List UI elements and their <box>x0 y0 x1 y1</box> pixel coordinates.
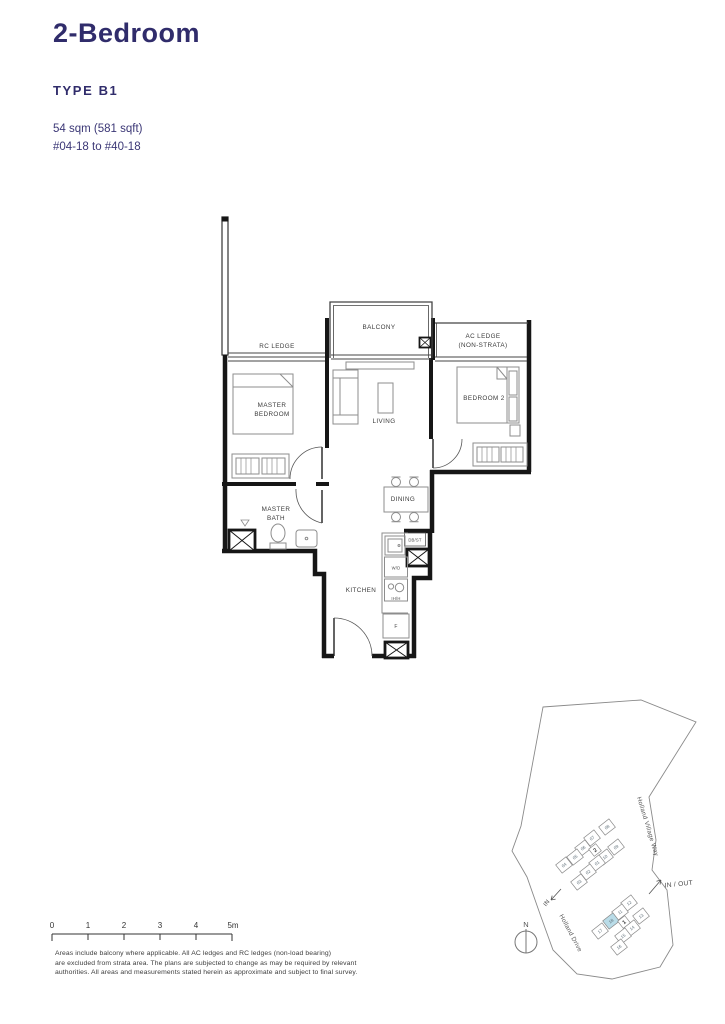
north-arrow: N <box>515 920 537 953</box>
page-title: 2-Bedroom <box>53 18 200 49</box>
block-2-cluster: 08 07 09 06 05 10 04 01 02 03 2 <box>556 819 625 890</box>
scale-tick-2: 2 <box>122 921 127 930</box>
living-label: LIVING <box>372 418 395 425</box>
master-bedroom-label-1: MASTER <box>258 402 287 409</box>
disclaimer-line-1: Areas include balcony where applicable. … <box>55 949 395 959</box>
in-out-label: IN / OUT <box>664 880 693 890</box>
site-unit: 08 <box>599 819 616 835</box>
unit-type: TYPE B1 <box>53 83 200 98</box>
master-bath-label-1: MASTER <box>262 506 291 513</box>
scale-tick-4: 4 <box>194 921 199 930</box>
road-holland-drive: Holland Drive <box>557 913 583 953</box>
ac-ledge-label-2: (NON-STRATA) <box>459 342 508 349</box>
fridge-label: F <box>394 624 397 630</box>
north-label: N <box>523 920 528 929</box>
toilet <box>270 524 286 549</box>
kitchen-counter <box>382 533 409 638</box>
in-label: IN <box>543 899 552 908</box>
master-bath-label-2: BATH <box>267 515 285 522</box>
road-holland-village-way: Holland Village Way <box>635 796 660 858</box>
kitchen-label: KITCHEN <box>346 587 376 594</box>
site-map: 08 07 09 06 05 10 04 01 02 03 2 <box>500 690 725 1005</box>
db-st-label: DB/ST <box>408 538 422 543</box>
header: 2-Bedroom TYPE B1 54 sqm (581 sqft) #04-… <box>53 18 200 156</box>
master-bedroom-label-2: BEDROOM <box>254 411 289 418</box>
unit-info: 54 sqm (581 sqft) #04-18 to #40-18 <box>53 120 200 156</box>
ledges-and-windows <box>228 302 528 361</box>
hob-label: IH/H <box>391 596 400 601</box>
ac-ledge-label-1: AC LEDGE <box>465 333 500 340</box>
dining-label: DINING <box>391 496 415 503</box>
site-boundary <box>512 700 696 979</box>
bedroom2-wardrobe <box>473 443 527 466</box>
scale-tick-3: 3 <box>158 921 163 930</box>
room-labels: RC LEDGE BALCONY AC LEDGE (NON-STRATA) M… <box>254 324 507 630</box>
in-arrow <box>551 889 561 900</box>
rc-ledge-label: RC LEDGE <box>259 343 294 350</box>
bedroom2-label: BEDROOM 2 <box>463 395 504 402</box>
unit-area: 54 sqm (581 sqft) <box>53 120 200 138</box>
tv-console <box>346 362 414 369</box>
entrance-arrows <box>551 880 661 900</box>
blade-wall <box>222 217 229 356</box>
master-wardrobe <box>232 454 289 478</box>
floor-trap <box>241 520 249 526</box>
washer-dryer-label: W/D <box>392 566 401 571</box>
scale-tick-0: 0 <box>50 921 55 930</box>
scale-bar: 0 1 2 3 4 5m <box>45 915 245 947</box>
basin <box>296 530 317 547</box>
disclaimer-line-3: authorities. All areas and measurements … <box>55 968 395 978</box>
scale-tick-5: 5m <box>227 921 238 930</box>
block-1-cluster: 12 11 13 18 14 17 15 16 1 <box>592 895 650 955</box>
disclaimer-line-2: are excluded from strata area. The plans… <box>55 959 395 969</box>
bedroom2-side-table <box>510 425 520 436</box>
floorplan-drawing: RC LEDGE BALCONY AC LEDGE (NON-STRATA) M… <box>210 195 550 675</box>
disclaimer: Areas include balcony where applicable. … <box>55 949 395 978</box>
floorplan-page: 2-Bedroom TYPE B1 54 sqm (581 sqft) #04-… <box>0 0 725 1024</box>
scale-bar-line <box>52 934 232 941</box>
balcony-label: BALCONY <box>363 324 396 331</box>
in-out-arrow <box>649 880 661 894</box>
coffee-table <box>378 383 393 413</box>
unit-stack: #04-18 to #40-18 <box>53 138 200 156</box>
scale-tick-1: 1 <box>86 921 91 930</box>
sofa <box>333 370 358 424</box>
